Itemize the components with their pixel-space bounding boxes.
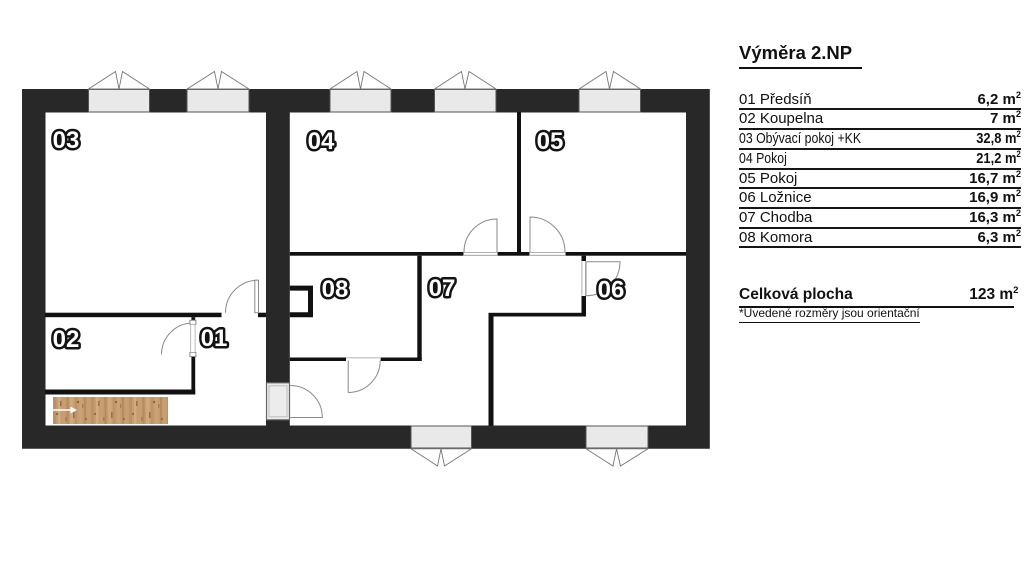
svg-text:03: 03 — [53, 127, 80, 154]
svg-text:06: 06 — [598, 277, 625, 304]
svg-text:01: 01 — [201, 325, 228, 352]
svg-text:05: 05 — [537, 128, 564, 155]
svg-text:08: 08 — [322, 276, 349, 303]
svg-text:02: 02 — [53, 326, 80, 353]
svg-text:04: 04 — [308, 128, 335, 155]
svg-text:07: 07 — [429, 275, 456, 302]
